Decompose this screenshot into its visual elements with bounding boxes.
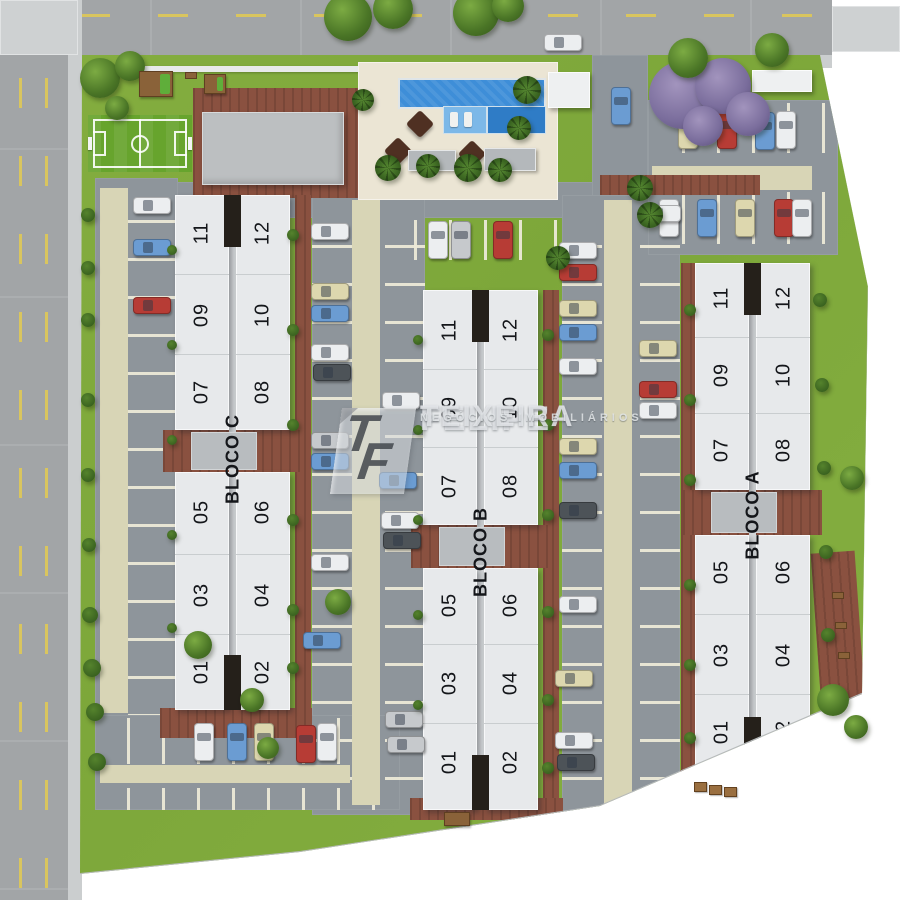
corner-sidewalk-top-right: [832, 6, 900, 52]
unit-number: 12: [500, 318, 523, 342]
unit-number: 07: [711, 438, 734, 462]
unit-number: 07: [191, 380, 214, 404]
top-road: [0, 0, 832, 55]
unit-number: 08: [500, 474, 523, 498]
unit-divider: [236, 274, 290, 275]
unit-number: 05: [439, 593, 462, 617]
unit-divider: [756, 413, 810, 414]
bloco-c-stair-void: [224, 195, 241, 247]
unit-number: 09: [439, 396, 462, 420]
unit-divider: [423, 369, 477, 370]
unit-number: 01: [191, 660, 214, 684]
unit-number: 09: [191, 303, 214, 327]
unit-divider: [484, 447, 538, 448]
unit-number: 06: [773, 560, 796, 584]
left-road-center-line: [19, 0, 22, 900]
unit-number: 12: [252, 221, 275, 245]
unit-number: 06: [252, 500, 275, 524]
unit-divider: [484, 644, 538, 645]
table: [724, 787, 737, 797]
corner-sidewalk-top-left: [0, 0, 78, 55]
unit-number: 10: [773, 363, 796, 387]
unit-divider: [236, 554, 290, 555]
table: [709, 785, 722, 795]
green-tree: [844, 715, 868, 739]
unit-number: 07: [439, 474, 462, 498]
unit-divider: [423, 447, 477, 448]
top-road-center-line: [80, 14, 830, 17]
unit-divider: [175, 554, 229, 555]
bloco-b-stair-void: [472, 290, 489, 342]
unit-number: 09: [711, 363, 734, 387]
left-road-lane-line: [45, 0, 48, 900]
unit-divider: [236, 354, 290, 355]
unit-number: 01: [711, 720, 734, 744]
unit-divider: [695, 614, 749, 615]
unit-divider: [175, 354, 229, 355]
unit-number: 10: [500, 396, 523, 420]
unit-number: 12: [773, 286, 796, 310]
bloco-a-label: BLOCO A: [742, 470, 763, 559]
unit-divider: [175, 634, 229, 635]
bloco-a-stair-void: [744, 263, 761, 315]
unit-number: 03: [711, 643, 734, 667]
unit-divider: [756, 694, 810, 695]
bloco-b-label: BLOCO B: [470, 507, 491, 597]
bloco-a-brick-pad: [680, 770, 822, 798]
bloco-c-label: BLOCO C: [222, 414, 243, 504]
bloco-a-stair-void: [744, 717, 761, 772]
unit-number: 04: [252, 583, 275, 607]
unit-number: 11: [711, 287, 734, 310]
unit-divider: [756, 337, 810, 338]
buildings-layer: BLOCO C110907050301121008060402BLOCO B11…: [0, 0, 900, 900]
unit-divider: [236, 634, 290, 635]
left-sidewalk: [68, 0, 82, 900]
table: [694, 782, 707, 792]
unit-divider: [484, 723, 538, 724]
unit-divider: [484, 369, 538, 370]
unit-number: 11: [439, 319, 462, 342]
unit-number: 10: [252, 303, 275, 327]
unit-divider: [423, 723, 477, 724]
condominium-site: BLOCO C110907050301121008060402BLOCO B11…: [0, 0, 900, 900]
unit-divider: [695, 337, 749, 338]
unit-number: 02: [252, 660, 275, 684]
unit-number: 11: [191, 222, 214, 245]
site-plan-render: BLOCO C110907050301121008060402BLOCO B11…: [0, 0, 900, 900]
unit-divider: [423, 644, 477, 645]
left-road: [0, 0, 68, 900]
unit-number: 05: [191, 500, 214, 524]
unit-number: 06: [500, 593, 523, 617]
bloco-c-stair-void: [224, 655, 241, 710]
unit-divider: [175, 274, 229, 275]
bloco-b-stair-void: [472, 755, 489, 810]
unit-number: 05: [711, 560, 734, 584]
unit-divider: [695, 694, 749, 695]
unit-divider: [695, 413, 749, 414]
unit-number: 08: [773, 438, 796, 462]
unit-number: 03: [191, 583, 214, 607]
unit-number: 04: [500, 671, 523, 695]
unit-number: 04: [773, 643, 796, 667]
unit-number: 08: [252, 380, 275, 404]
unit-number: 02: [500, 750, 523, 774]
unit-number: 03: [439, 671, 462, 695]
unit-number: 01: [439, 750, 462, 774]
unit-divider: [756, 614, 810, 615]
